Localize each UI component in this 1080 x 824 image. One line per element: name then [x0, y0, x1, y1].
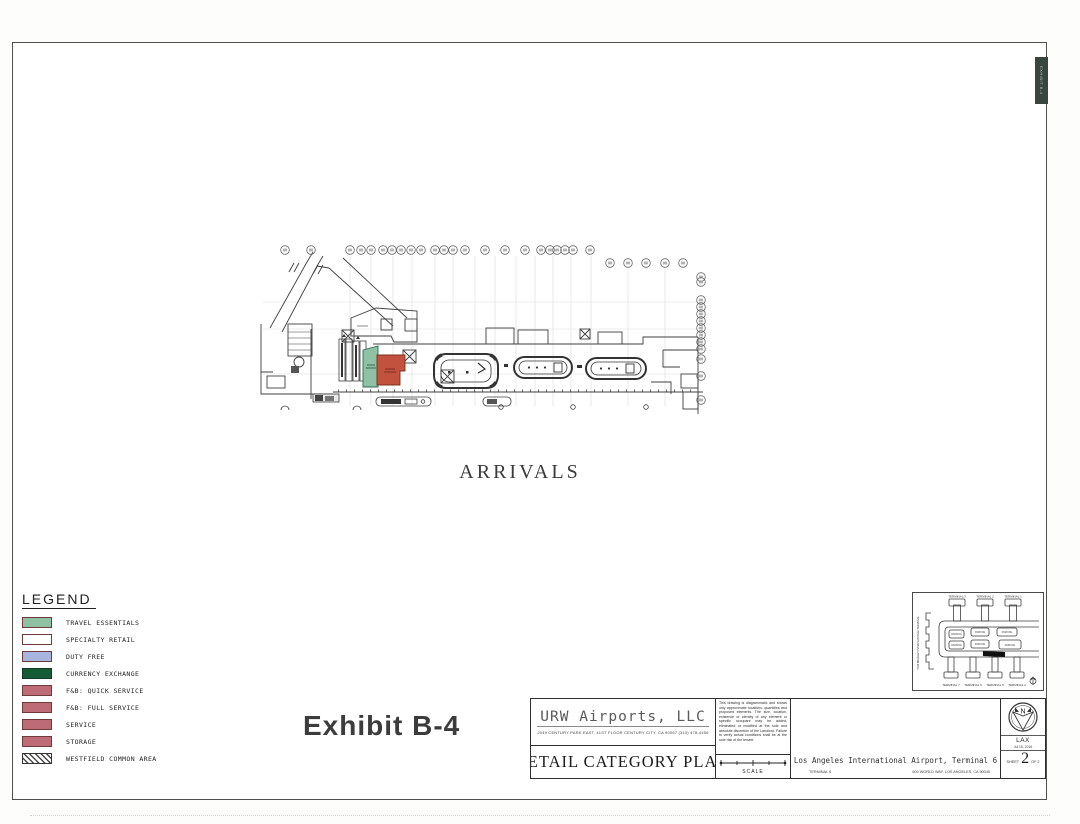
arrivals-label: ARRIVALS [415, 461, 625, 484]
legend-swatch [22, 617, 52, 628]
parking-label: PARKING [975, 631, 986, 634]
legend-swatch [22, 702, 52, 713]
legend-swatch [22, 719, 52, 730]
project-name: Los Angeles International Airport, Termi… [791, 756, 1000, 765]
parking-label: PARKING [1002, 631, 1013, 634]
drawing-title: RETAIL CATEGORY PLAN [531, 752, 715, 772]
sheet-date: Jul 16, 2016 [1014, 745, 1032, 749]
parking-label: PARKING [975, 643, 986, 646]
title-block-notes-cell: This drawing is diagrammatic and shows o… [715, 699, 790, 778]
terminal-location-map: TERMINAL 3 TERMINAL 2 TERMINAL 1 TERMINA… [912, 592, 1044, 691]
legend-swatch [22, 634, 52, 645]
scale-bar [718, 758, 788, 768]
north-arrow-icon: N [1005, 701, 1041, 735]
construction-grid [263, 256, 698, 406]
north-letter: N [1020, 709, 1025, 716]
disclaimer-text: This drawing is diagrammatic and shows o… [716, 699, 790, 755]
sheet-label: SHEET [1006, 760, 1019, 764]
project-terminal: TERMINAL 6 [809, 770, 831, 774]
legend-label: DUTY FREE [66, 653, 105, 661]
inset-label: TERMINAL 5 [986, 683, 1004, 687]
sheet-number: 2 [1021, 752, 1029, 766]
legend-swatch [22, 736, 52, 747]
legend-item: SPECIALTY RETAIL [22, 631, 157, 648]
inset-label: TERMINAL 4 [1008, 683, 1026, 687]
inset-label: TERMINAL 1 [1004, 595, 1022, 599]
exhibit-label: Exhibit B-4 [303, 710, 460, 742]
legend-swatch [22, 651, 52, 662]
project-address: 600 WORLD WAY, LOS ANGELES, CA 90045 [912, 770, 990, 774]
side-tab: EXHIBIT B-4 [1035, 57, 1048, 104]
legend-label: SERVICE [66, 721, 96, 729]
scale-label: SCALE [742, 769, 763, 775]
building-walls [261, 252, 703, 414]
inset-north-icon [1030, 677, 1036, 685]
legend-item: F&B: QUICK SERVICE [22, 682, 157, 699]
inset-label: TERMINAL 6 [964, 683, 982, 687]
room-travel-essentials [363, 346, 378, 387]
legend-item: WESTFIELD COMMON AREA [22, 750, 157, 767]
inset-label: TERMINAL 2 [976, 595, 994, 599]
side-tab-label: EXHIBIT B-4 [1039, 66, 1044, 94]
floor-plan [253, 224, 715, 426]
legend-label: SPECIALTY RETAIL [66, 636, 135, 644]
title-block-project-cell: Los Angeles International Airport, Termi… [790, 699, 1000, 778]
title-block-sheet-cell: N LAX Jul 16, 2016 SHEET 2 OF 2 [1000, 699, 1045, 778]
legend-item: DUTY FREE [22, 648, 157, 665]
title-block: URW Airports, LLC 2049 CENTURY PARK EAST… [530, 698, 1046, 779]
inset-label: TERMINAL 3 [948, 595, 966, 599]
legend-item: SERVICE [22, 716, 157, 733]
terminal6-highlight [983, 651, 1005, 657]
company-address: 2049 CENTURY PARK EAST, 41ST FLOOR CENTU… [537, 730, 708, 735]
legend-label: CURRENCY EXCHANGE [66, 670, 139, 678]
grid-bubbles [281, 246, 706, 405]
legend: LEGEND TRAVEL ESSENTIALSSPECIALTY RETAIL… [22, 591, 157, 767]
legend-swatch [22, 753, 52, 764]
legend-item: CURRENCY EXCHANGE [22, 665, 157, 682]
legend-label: TRAVEL ESSENTIALS [66, 619, 139, 627]
legend-label: F&B: QUICK SERVICE [66, 687, 144, 695]
legend-item: TRAVEL ESSENTIALS [22, 614, 157, 631]
company-name: URW Airports, LLC [537, 709, 708, 727]
parking-label: PARKING [951, 644, 962, 647]
legend-item: F&B: FULL SERVICE [22, 699, 157, 716]
curbside-islands [281, 394, 648, 410]
legend-label: WESTFIELD COMMON AREA [66, 755, 157, 763]
legend-item: STORAGE [22, 733, 157, 750]
baggage-carousels [434, 354, 646, 388]
parking-label: PARKING [951, 633, 962, 636]
scanned-sheet: { "page": { "exhibit_label": "Exhibit B-… [0, 0, 1080, 824]
title-block-company-cell: URW Airports, LLC 2049 CENTURY PARK EAST… [531, 699, 715, 778]
room-fnb-quick-service [377, 355, 405, 385]
legend-swatch [22, 668, 52, 679]
parking-label: PARKING [1005, 644, 1016, 647]
legend-label: STORAGE [66, 738, 96, 746]
inset-label: TERMINAL 7 [942, 683, 960, 687]
legend-items: TRAVEL ESSENTIALSSPECIALTY RETAILDUTY FR… [22, 614, 157, 767]
airport-code: LAX [1016, 737, 1030, 744]
sheet-of-label: OF 2 [1031, 760, 1039, 764]
legend-swatch [22, 685, 52, 696]
inset-tbit-label: TOM BRADLEY INTERNATIONAL TERMINAL [916, 616, 920, 670]
scan-artifact-line [30, 815, 1050, 816]
legend-title: LEGEND [22, 591, 96, 609]
legend-label: F&B: FULL SERVICE [66, 704, 139, 712]
